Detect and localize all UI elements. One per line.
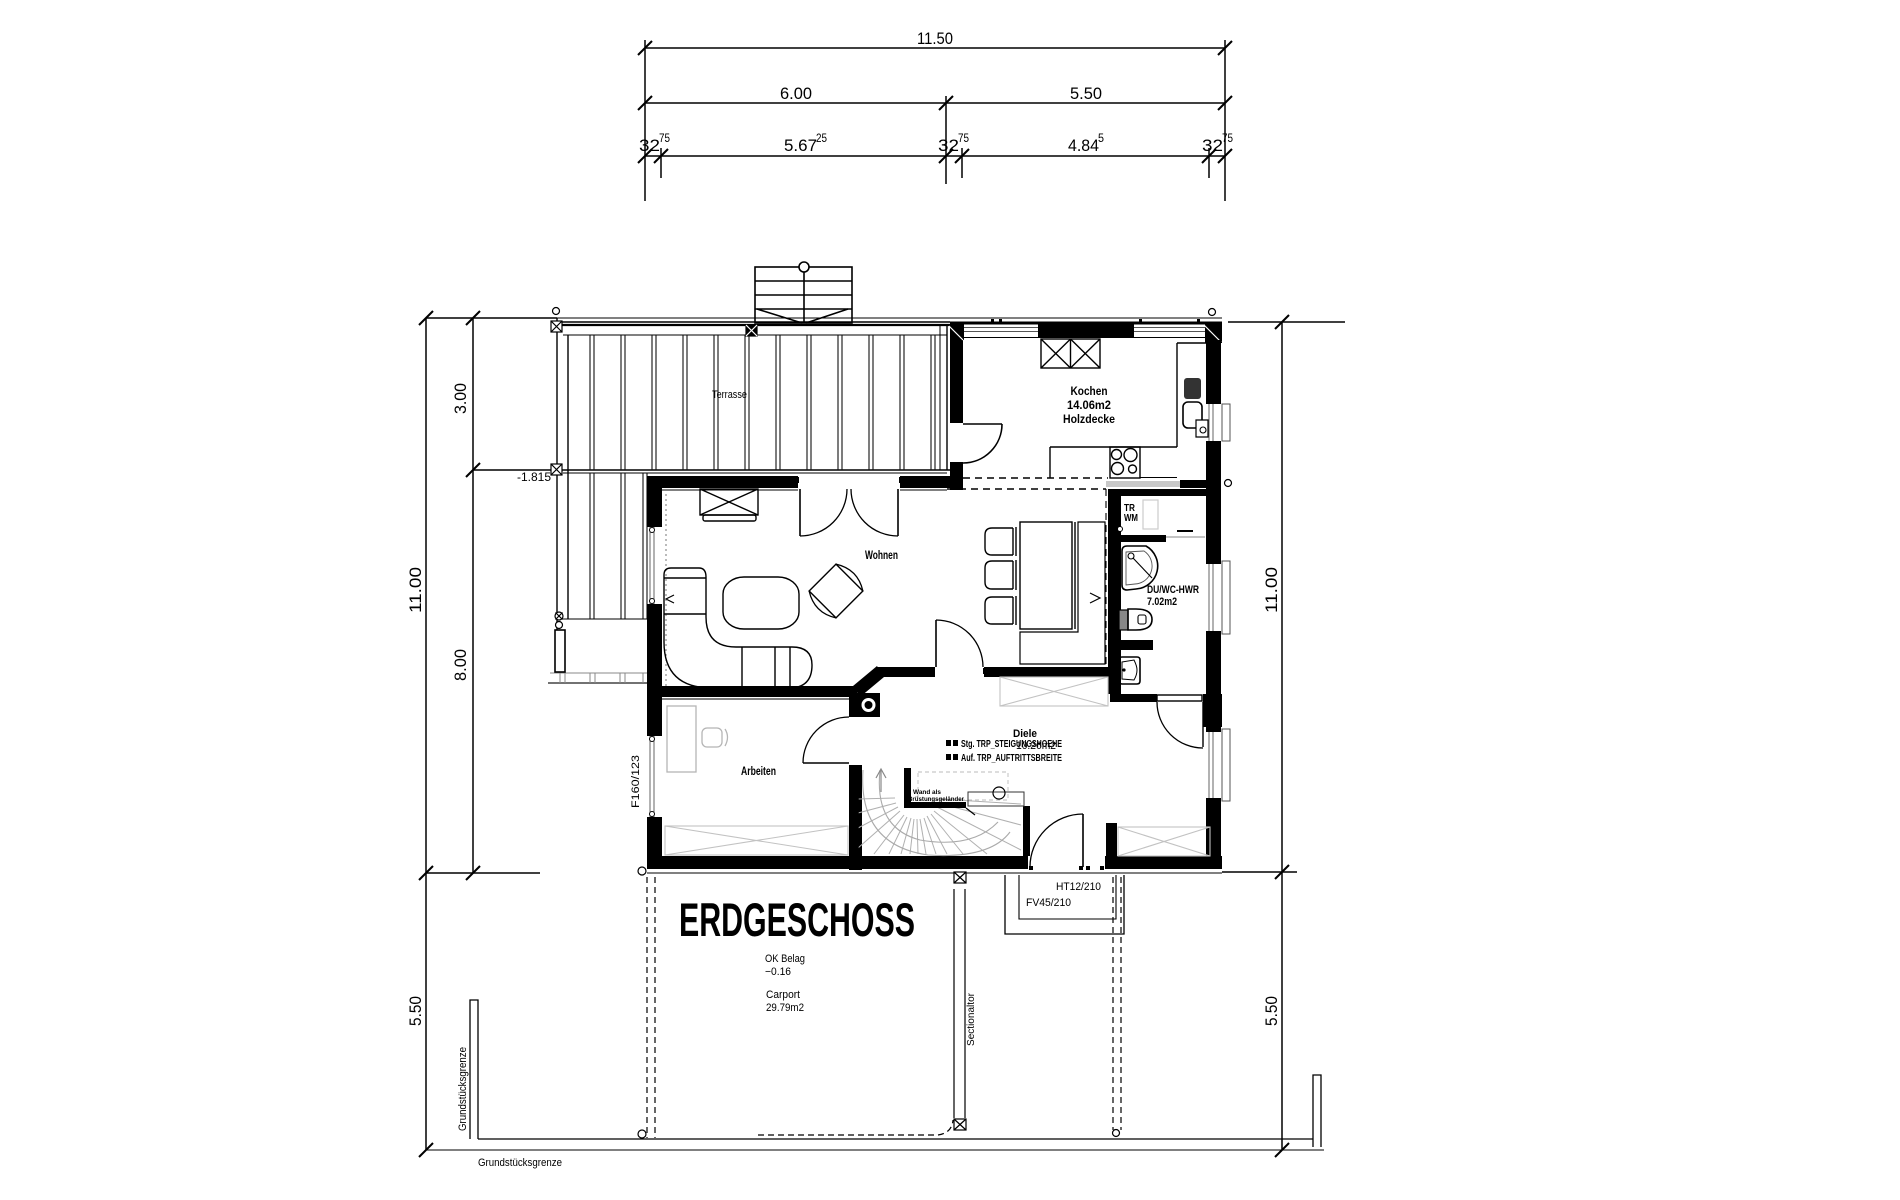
svg-text:5: 5: [1098, 131, 1104, 145]
svg-text:-1.815: -1.815: [517, 470, 551, 484]
svg-text:Kochen: Kochen: [1071, 384, 1108, 398]
svg-text:75: 75: [1222, 131, 1233, 145]
svg-text:Wand als: Wand als: [913, 789, 941, 796]
svg-text:F160/123: F160/123: [630, 755, 642, 808]
svg-text:7.02m2: 7.02m2: [1147, 596, 1177, 608]
svg-text:5.67: 5.67: [784, 136, 817, 155]
svg-text:32: 32: [639, 136, 660, 155]
svg-text:3.00: 3.00: [451, 383, 470, 414]
svg-text:FV45/210: FV45/210: [1026, 897, 1071, 909]
svg-text:Holzdecke: Holzdecke: [1063, 412, 1115, 426]
svg-text:11.50: 11.50: [917, 29, 953, 48]
svg-text:5.50: 5.50: [406, 996, 425, 1026]
svg-text:DU/WC-HWR: DU/WC-HWR: [1147, 584, 1199, 596]
svg-text:4.84: 4.84: [1068, 136, 1099, 155]
svg-text:8.00: 8.00: [451, 649, 470, 681]
svg-text:11.00: 11.00: [1262, 567, 1281, 613]
svg-text:Grundstücksgrenze: Grundstücksgrenze: [478, 1157, 562, 1169]
svg-text:Grundstücksgrenze: Grundstücksgrenze: [457, 1047, 469, 1131]
svg-text:HT12/210: HT12/210: [1056, 881, 1101, 893]
svg-text:WM: WM: [1124, 513, 1138, 524]
svg-text:29.79m2: 29.79m2: [766, 1002, 804, 1014]
svg-text:32: 32: [938, 136, 959, 155]
svg-text:6.00: 6.00: [780, 84, 812, 103]
svg-text:Carport: Carport: [766, 989, 800, 1001]
svg-text:ERDGESCHOSS: ERDGESCHOSS: [679, 893, 915, 946]
svg-text:75: 75: [958, 131, 969, 145]
svg-text:75: 75: [659, 131, 670, 145]
svg-text:25: 25: [816, 131, 827, 145]
svg-text:Terrasse: Terrasse: [712, 389, 747, 401]
svg-text:Arbeiten: Arbeiten: [741, 764, 776, 778]
svg-text:Sectionaltor: Sectionaltor: [966, 992, 977, 1046]
svg-text:5.50: 5.50: [1262, 996, 1281, 1026]
svg-text:Brüstungsgeländer: Brüstungsgeländer: [908, 796, 964, 803]
svg-text:32: 32: [1202, 136, 1223, 155]
svg-text:11.00: 11.00: [406, 567, 425, 613]
svg-text:14.06m2: 14.06m2: [1067, 398, 1111, 412]
svg-text:−0.16: −0.16: [765, 966, 791, 978]
svg-text:Auf. TRP_AUFTRITTSBREITE: Auf. TRP_AUFTRITTSBREITE: [961, 753, 1062, 764]
svg-text:OK Belag: OK Belag: [765, 953, 805, 965]
svg-text:Stg. TRP_STEIGUNGSHOEHE: Stg. TRP_STEIGUNGSHOEHE: [961, 739, 1062, 750]
svg-text:5.50: 5.50: [1070, 84, 1102, 103]
svg-text:Wohnen: Wohnen: [865, 548, 898, 562]
